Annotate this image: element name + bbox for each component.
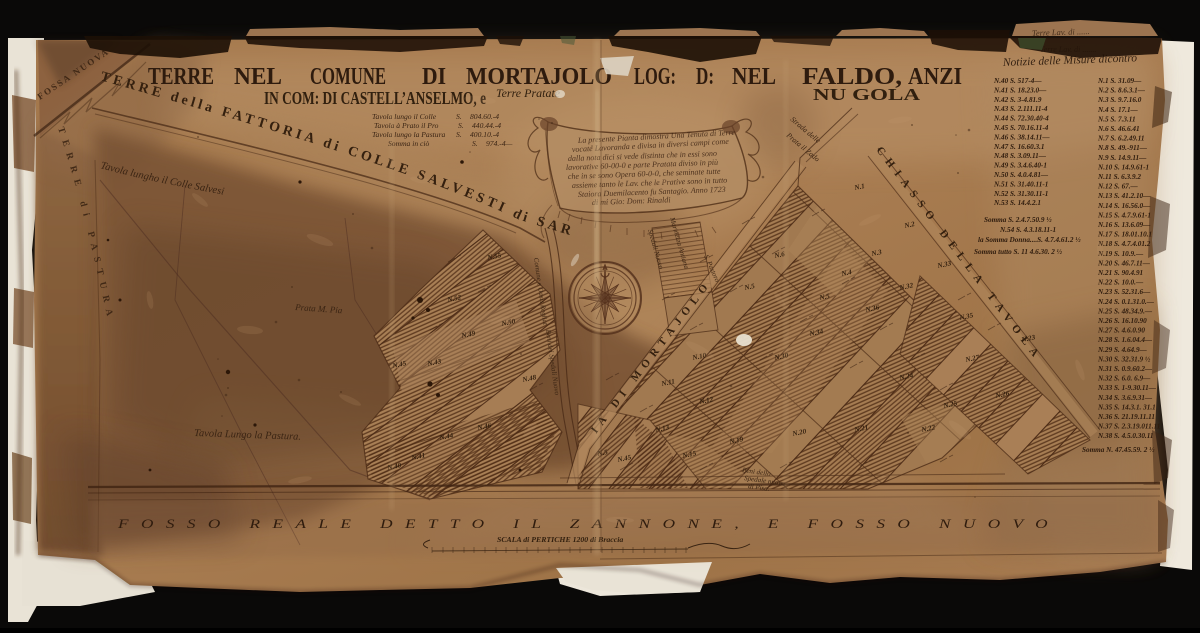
- svg-text:N.29 S. 4.64.9—: N.29 S. 4.64.9—: [1097, 346, 1148, 354]
- svg-text:N.37 S. 2.3.19.011.11: N.37 S. 2.3.19.011.11: [1097, 423, 1160, 431]
- svg-text:N.54 S. 4.3.18.11-1: N.54 S. 4.3.18.11-1: [999, 226, 1056, 234]
- svg-text:N.45 S. 70.16.11-4: N.45 S. 70.16.11-4: [993, 124, 1049, 132]
- svg-text:Terre Lav. di ......: Terre Lav. di ......: [1032, 26, 1090, 38]
- svg-text:S.: S.: [456, 112, 462, 121]
- svg-text:N.51 S. 31.40.11-1: N.51 S. 31.40.11-1: [993, 180, 1048, 188]
- svg-text:N.6 S. 46.6.41: N.6 S. 46.6.41: [1097, 125, 1140, 133]
- svg-text:NEL: NEL: [234, 64, 282, 90]
- svg-text:N.18 S. 4.7.4.01.2: N.18 S. 4.7.4.01.2: [1097, 240, 1151, 248]
- svg-text:N.53 S. 14.4.2.1: N.53 S. 14.4.2.1: [993, 199, 1041, 207]
- svg-text:N.52 S. 31.30.11-1: N.52 S. 31.30.11-1: [993, 190, 1048, 198]
- svg-text:D:: D:: [696, 64, 714, 90]
- svg-text:N.43 S. 2.111.11-4: N.43 S. 2.111.11-4: [993, 105, 1048, 113]
- svg-text:N.35 S. 14.3.1. 31.1: N.35 S. 14.3.1. 31.1: [1097, 403, 1156, 411]
- svg-text:N.34 S. 3.6.9.31—: N.34 S. 3.6.9.31—: [1097, 394, 1153, 402]
- svg-text:Terre Pratate: Terre Pratate: [496, 86, 561, 100]
- svg-text:N.20 S. 46.7.11—: N.20 S. 46.7.11—: [1097, 259, 1151, 267]
- svg-text:400.10.-4: 400.10.-4: [470, 130, 499, 139]
- svg-text:N.22 S. 10.0.—: N.22 S. 10.0.—: [1097, 279, 1144, 287]
- svg-text:Somma in ciò: Somma in ciò: [388, 139, 430, 148]
- svg-text:Tavola à Prato il Pro: Tavola à Prato il Pro: [374, 121, 439, 130]
- svg-text:Tavola lungo la Pastura: Tavola lungo la Pastura: [372, 130, 446, 139]
- svg-text:804.60.-4: 804.60.-4: [470, 112, 499, 121]
- svg-text:DI: DI: [422, 64, 446, 90]
- svg-text:FOSSO REALE DETTO IL ZANNO: FOSSO REALE DETTO IL ZANNONE, E FOSSO NU…: [117, 517, 1060, 531]
- svg-text:N.19 S. 10.9.—: N.19 S. 10.9.—: [1097, 250, 1144, 258]
- svg-text:N.23 S. 52.31.6—: N.23 S. 52.31.6—: [1097, 288, 1151, 296]
- svg-text:N.10 S. 14.9.61-1: N.10 S. 14.9.61-1: [1097, 163, 1149, 171]
- svg-text:N.15 S. 4.7.9.61-1: N.15 S. 4.7.9.61-1: [1097, 211, 1151, 219]
- svg-text:COMUNE: COMUNE: [310, 64, 386, 90]
- svg-text:N.1 S. 31.09—: N.1 S. 31.09—: [1097, 77, 1142, 85]
- svg-text:N.42 S. 3-4.81.9: N.42 S. 3-4.81.9: [993, 96, 1042, 104]
- svg-text:N.41 S. 18.23.0—: N.41 S. 18.23.0—: [993, 86, 1047, 94]
- svg-text:Tavola lungo il Colle: Tavola lungo il Colle: [372, 112, 437, 121]
- svg-text:N.14 S. 16.56.0—: N.14 S. 16.56.0—: [1097, 202, 1151, 210]
- svg-text:N.13 S. 41.2.10—: N.13 S. 41.2.10—: [1097, 192, 1151, 200]
- svg-text:NEL: NEL: [732, 64, 776, 90]
- svg-text:N.27 S. 4.6.0.90: N.27 S. 4.6.0.90: [1097, 327, 1145, 335]
- svg-text:440.44.-4: 440.44.-4: [472, 121, 501, 130]
- svg-text:N.5 S. 7.3.11: N.5 S. 7.3.11: [1097, 115, 1136, 123]
- svg-text:N.36 S. 21.19.11.11: N.36 S. 21.19.11.11: [1097, 413, 1155, 421]
- svg-text:N.16 S. 13.6.09—: N.16 S. 13.6.09—: [1097, 221, 1151, 229]
- svg-text:S.: S.: [458, 121, 464, 130]
- svg-text:N.3 S. 9.7.16.0: N.3 S. 9.7.16.0: [1097, 96, 1142, 104]
- svg-text:N.8 S. 49.-911—: N.8 S. 49.-911—: [1097, 144, 1148, 152]
- svg-text:N.25 S. 48.34.9.—: N.25 S. 48.34.9.—: [1097, 307, 1153, 315]
- svg-text:N.17 S. 18.01.10.1: N.17 S. 18.01.10.1: [1097, 231, 1152, 239]
- svg-text:N.40 S. 517-4—: N.40 S. 517-4—: [993, 77, 1042, 85]
- svg-text:N.32 S. 6.0. 6.9—: N.32 S. 6.0. 6.9—: [1097, 375, 1151, 383]
- svg-text:N.24 S. 0.1.31.0.—: N.24 S. 0.1.31.0.—: [1097, 298, 1155, 306]
- svg-text:IN COM: DI CASTELL’ANSELMO, e: IN COM: DI CASTELL’ANSELMO, e: [264, 88, 486, 108]
- svg-text:Somma tutto S. 11 4.6.30. 2 ½: Somma tutto S. 11 4.6.30. 2 ½: [974, 248, 1063, 256]
- svg-text:Somma S. 2.4.7.50.9 ½: Somma S. 2.4.7.50.9 ½: [984, 216, 1052, 224]
- svg-text:S.: S.: [472, 139, 478, 148]
- svg-text:974.-4—: 974.-4—: [486, 139, 513, 148]
- svg-text:N.48 S. 3.09.11—: N.48 S. 3.09.11—: [993, 152, 1047, 160]
- svg-text:N.21 S. 90.4.91: N.21 S. 90.4.91: [1097, 269, 1143, 277]
- svg-text:N.46 S. 38.14.11—: N.46 S. 38.14.11—: [993, 133, 1050, 141]
- svg-text:N.4 S. 17.1—: N.4 S. 17.1—: [1097, 106, 1139, 114]
- svg-text:N.33 S. 1-9.30.11—: N.33 S. 1-9.30.11—: [1097, 384, 1157, 392]
- svg-text:N.2 S. 8.6.3.1—: N.2 S. 8.6.3.1—: [1097, 87, 1146, 95]
- svg-text:N.47 S. 16.60.3.1: N.47 S. 16.60.3.1: [993, 143, 1045, 151]
- svg-text:SCALA di PERTICHE 1200 di Brac: SCALA di PERTICHE 1200 di Braccia: [497, 535, 623, 544]
- svg-text:N.38 S. 4.5.0.30.11: N.38 S. 4.5.0.30.11: [1097, 432, 1154, 440]
- svg-text:LOG:: LOG:: [634, 64, 676, 90]
- svg-text:la Somma Donna....S. 4.7.4.61: la Somma Donna....S. 4.7.4.61.2 ½: [978, 236, 1081, 244]
- svg-text:N.49 S. 3.4.6.40-1: N.49 S. 3.4.6.40-1: [993, 162, 1047, 170]
- svg-text:N.9 S. 14.9.11—: N.9 S. 14.9.11—: [1097, 154, 1147, 162]
- svg-text:NU GOLA: NU GOLA: [813, 85, 920, 104]
- svg-text:N.50 S. 4.0.4.81—: N.50 S. 4.0.4.81—: [993, 171, 1049, 179]
- svg-text:N.30 S. 32.31.9 ½: N.30 S. 32.31.9 ½: [1097, 355, 1151, 363]
- svg-text:N.44 S. 72.30.40-4: N.44 S. 72.30.40-4: [993, 115, 1049, 123]
- svg-text:N.28 S. 1.6.04.4—: N.28 S. 1.6.04.4—: [1097, 336, 1153, 344]
- svg-text:N.31 S. 0.9.60.2—: N.31 S. 0.9.60.2—: [1097, 365, 1153, 373]
- svg-text:N.7 S. 6.2.49.11: N.7 S. 6.2.49.11: [1097, 135, 1145, 143]
- svg-text:N.11 S. 6.3.9.2: N.11 S. 6.3.9.2: [1097, 173, 1141, 181]
- svg-text:N.12 S. 67.—: N.12 S. 67.—: [1097, 183, 1139, 191]
- svg-text:Somma N. 47.45.59. 2 ½: Somma N. 47.45.59. 2 ½: [1082, 446, 1155, 454]
- svg-text:N.26 S. 16.10.90: N.26 S. 16.10.90: [1097, 317, 1147, 325]
- svg-text:S.: S.: [456, 130, 462, 139]
